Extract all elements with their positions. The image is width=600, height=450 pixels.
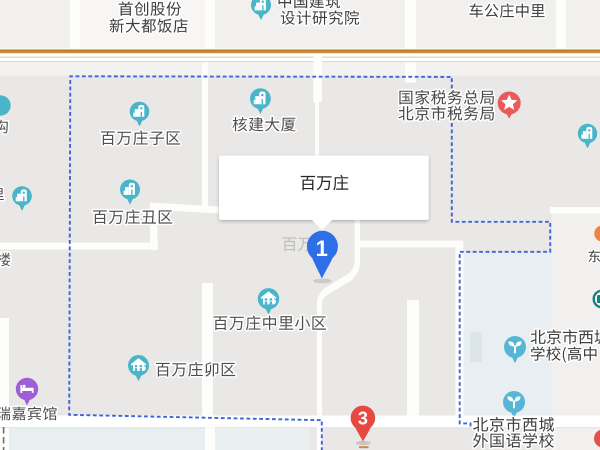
svg-text:3: 3	[358, 408, 368, 428]
svg-text:1: 1	[316, 236, 328, 261]
